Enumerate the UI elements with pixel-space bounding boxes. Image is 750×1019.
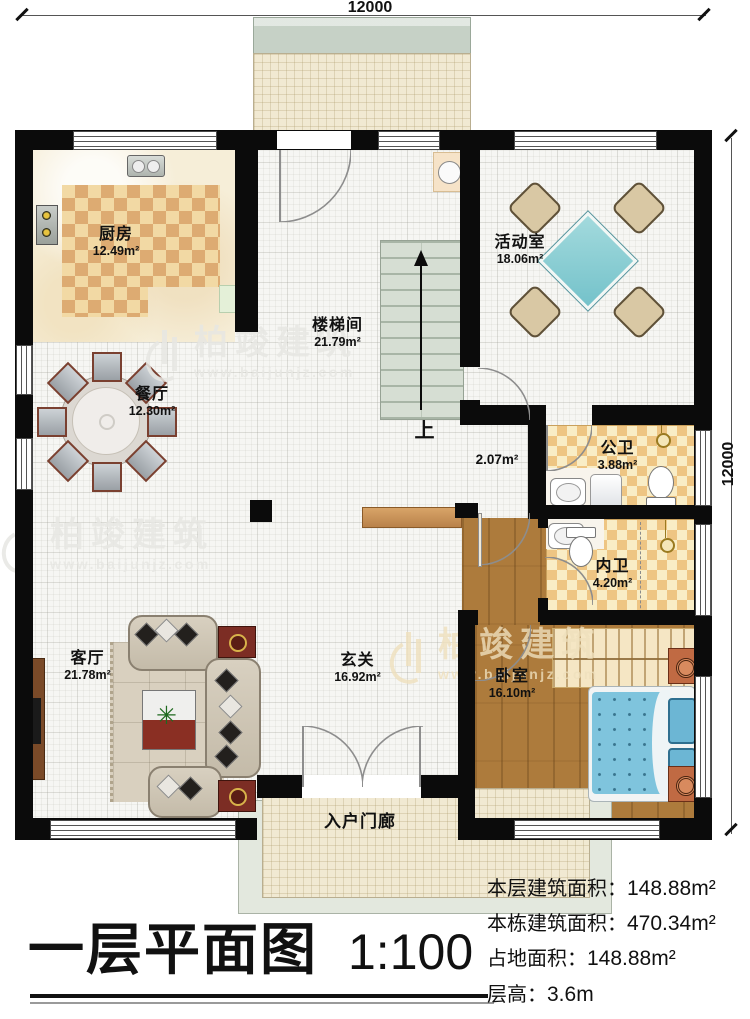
terrace bbox=[253, 17, 471, 131]
plan-title: 一层平面图 bbox=[28, 922, 318, 978]
stove-burner bbox=[42, 228, 51, 237]
column bbox=[250, 500, 272, 522]
window bbox=[695, 676, 712, 798]
entrance-door-arc bbox=[362, 726, 423, 787]
room-area: 3.88m² bbox=[570, 458, 665, 472]
wall bbox=[257, 775, 302, 798]
room-label-public-bath: 公卫 3.88m² bbox=[570, 440, 665, 472]
window bbox=[16, 345, 33, 395]
side-table-medallion bbox=[229, 788, 247, 806]
terrace-roof-band bbox=[253, 17, 471, 55]
stat-value: 148.88m² bbox=[627, 877, 716, 900]
side-table bbox=[218, 780, 256, 812]
basin-bowl bbox=[438, 161, 461, 184]
room-label-porch: 入户门廊 bbox=[295, 812, 425, 831]
bed-pillow bbox=[668, 698, 696, 744]
room-area: 12.30m² bbox=[97, 404, 207, 418]
stat-row: 本层建筑面积：148.88m² bbox=[487, 872, 716, 901]
door-leaf bbox=[546, 425, 548, 471]
stove bbox=[36, 205, 58, 245]
side-table-medallion bbox=[229, 634, 247, 652]
room-area: 21.78m² bbox=[35, 668, 140, 682]
room-label-living: 客厅 21.78m² bbox=[35, 650, 140, 682]
stat-value: 148.88m² bbox=[587, 947, 676, 970]
room-name: 楼梯间 bbox=[280, 317, 395, 335]
window bbox=[514, 820, 660, 839]
kitchen-rug bbox=[62, 287, 148, 317]
title-underline bbox=[30, 994, 488, 998]
room-name: 玄关 bbox=[305, 652, 410, 670]
sink-bowl bbox=[147, 160, 160, 173]
door-leaf bbox=[478, 513, 482, 567]
room-area: 4.20m² bbox=[565, 576, 660, 590]
terrace-floor bbox=[253, 53, 471, 132]
title-block: 一层平面图 1:100 bbox=[28, 922, 473, 978]
room-label-activity: 活动室 18.06m² bbox=[465, 234, 575, 266]
terrace-door-opening bbox=[277, 131, 351, 149]
title-underline-thin bbox=[30, 1002, 494, 1004]
nightstand-knob bbox=[676, 776, 696, 796]
room-area: 2.07m² bbox=[452, 452, 542, 467]
console-table bbox=[362, 507, 462, 528]
window bbox=[50, 820, 236, 839]
nightstand-knob bbox=[676, 658, 696, 678]
room-label-stairwell: 楼梯间 21.79m² bbox=[280, 317, 395, 349]
room-name: 厨房 bbox=[60, 226, 172, 244]
room-label-dining: 餐厅 12.30m² bbox=[97, 386, 207, 418]
wall bbox=[592, 405, 712, 425]
entrance-door-leaf bbox=[419, 726, 421, 787]
stove-burner bbox=[42, 211, 51, 220]
window bbox=[514, 131, 657, 150]
room-label-private-bath: 内卫 4.20m² bbox=[565, 558, 660, 590]
stairs-up-arrow-stem bbox=[420, 264, 422, 410]
tv bbox=[32, 698, 41, 744]
stat-row: 占地面积：148.88m² bbox=[487, 942, 676, 971]
room-name: 卧室 bbox=[462, 668, 562, 686]
room-name: 餐厅 bbox=[97, 386, 207, 404]
up-text: 上 bbox=[403, 420, 447, 442]
right-dimension-label: 12000 bbox=[720, 419, 738, 509]
room-label-corridor: 2.07m² bbox=[452, 452, 542, 467]
wall bbox=[421, 775, 466, 798]
wall bbox=[528, 505, 712, 519]
entrance-door-leaf bbox=[302, 726, 304, 787]
stat-value: 3.6m bbox=[547, 983, 594, 1006]
room-area: 18.06m² bbox=[465, 252, 575, 266]
top-dimension-label: 12000 bbox=[325, 0, 415, 17]
door-arc bbox=[478, 368, 530, 420]
kitchen-sink bbox=[127, 155, 165, 177]
side-table bbox=[218, 626, 256, 658]
stat-label: 本栋建筑面积： bbox=[487, 913, 627, 935]
door-arc bbox=[279, 150, 351, 222]
stat-row: 本栋建筑面积：470.34m² bbox=[487, 907, 716, 936]
room-area: 16.10m² bbox=[462, 686, 562, 700]
wall bbox=[235, 130, 258, 332]
room-area: 21.79m² bbox=[280, 335, 395, 349]
stairs-up-label: 上 bbox=[403, 420, 447, 442]
room-area: 12.49m² bbox=[60, 244, 172, 258]
room-name: 客厅 bbox=[35, 650, 140, 668]
door-arc bbox=[478, 513, 530, 565]
window bbox=[695, 430, 712, 506]
wall bbox=[540, 610, 694, 625]
sink-bowl bbox=[132, 160, 145, 173]
wall bbox=[538, 519, 548, 528]
room-name: 活动室 bbox=[465, 234, 575, 252]
room-name: 公卫 bbox=[570, 440, 665, 458]
entrance-door-arc bbox=[302, 726, 363, 787]
room-name: 内卫 bbox=[565, 558, 660, 576]
room-area: 16.92m² bbox=[305, 670, 410, 684]
room-label-bedroom: 卧室 16.10m² bbox=[462, 668, 562, 700]
plan-scale: 1:100 bbox=[348, 926, 473, 979]
stat-label: 层高： bbox=[487, 984, 547, 1006]
floor-plan-canvas: 12000 12000 bbox=[0, 0, 750, 1019]
room-label-kitchen: 厨房 12.49m² bbox=[60, 226, 172, 258]
stat-value: 470.34m² bbox=[627, 912, 716, 935]
washing-machine bbox=[590, 474, 622, 509]
room-name: 入户门廊 bbox=[295, 812, 425, 831]
plant: ✳ bbox=[156, 704, 182, 730]
door-leaf bbox=[279, 150, 281, 222]
window bbox=[73, 131, 217, 150]
wall bbox=[455, 503, 478, 518]
wall bbox=[458, 610, 475, 840]
public-bath-sink bbox=[550, 478, 586, 506]
dining-chair bbox=[92, 352, 122, 382]
window bbox=[378, 131, 440, 150]
ceiling-lamp bbox=[660, 538, 675, 553]
lamp-cord bbox=[665, 520, 666, 538]
bed-mattress bbox=[592, 692, 660, 794]
stat-label: 本层建筑面积： bbox=[487, 878, 627, 900]
room-label-foyer: 玄关 16.92m² bbox=[305, 652, 410, 684]
stat-row: 层高：3.6m bbox=[487, 978, 594, 1007]
sink-bowl bbox=[556, 483, 581, 502]
window bbox=[695, 524, 712, 616]
sofa bbox=[128, 615, 218, 671]
stat-label: 占地面积： bbox=[487, 948, 587, 970]
window bbox=[16, 438, 33, 490]
dining-chair bbox=[37, 407, 67, 437]
dining-chair bbox=[92, 462, 122, 492]
